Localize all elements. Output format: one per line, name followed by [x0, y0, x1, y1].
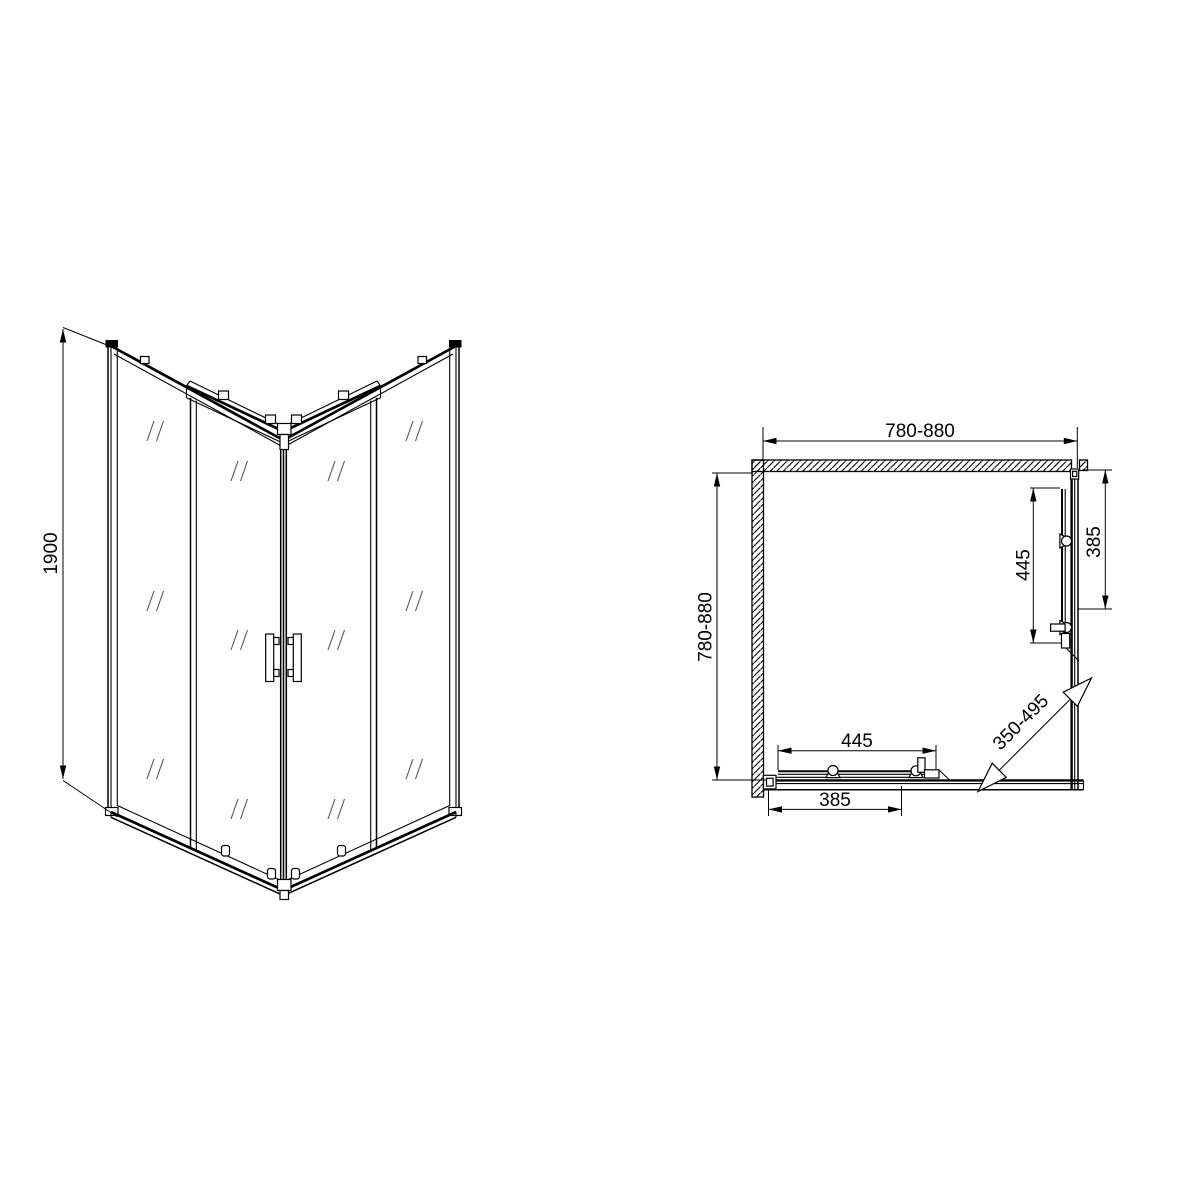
door-handle-right	[1051, 624, 1066, 631]
wall-top-end	[1080, 460, 1088, 471]
technical-drawing-canvas: 1900	[0, 0, 1200, 1200]
right-door-label: 385	[1084, 526, 1105, 558]
door-roller-right-1	[1062, 536, 1072, 546]
door-end-bracket-bottom	[925, 770, 940, 778]
height-dimension-label: 1900	[41, 532, 62, 574]
bottom-door-label: 385	[819, 790, 851, 811]
page-background	[0, 0, 1200, 1200]
top-width-label: 780-880	[885, 421, 955, 442]
right-fixed-panel-label: 445	[1014, 549, 1035, 581]
left-depth-label: 780-880	[696, 592, 717, 662]
wall-left	[752, 460, 764, 797]
wall-top	[752, 460, 1072, 472]
door-roller-bottom-1	[828, 766, 838, 776]
door-end-bracket-right	[1062, 634, 1070, 649]
bottom-fixed-panel-label: 445	[841, 731, 873, 752]
shower-enclosure-drawing: 1900	[0, 0, 1200, 1200]
